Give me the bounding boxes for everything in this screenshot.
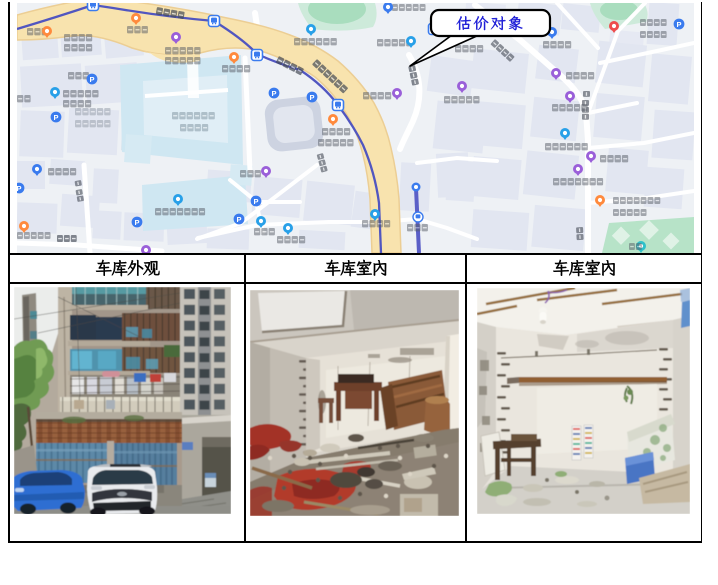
svg-text:P: P bbox=[271, 89, 276, 98]
svg-text:P: P bbox=[89, 75, 94, 84]
svg-text:P: P bbox=[236, 215, 241, 224]
svg-text:P: P bbox=[53, 113, 58, 122]
svg-text:P: P bbox=[309, 93, 314, 102]
svg-text:P: P bbox=[676, 20, 681, 29]
svg-text:P: P bbox=[134, 218, 139, 227]
svg-text:P: P bbox=[253, 197, 258, 206]
svg-text:P: P bbox=[17, 184, 22, 193]
